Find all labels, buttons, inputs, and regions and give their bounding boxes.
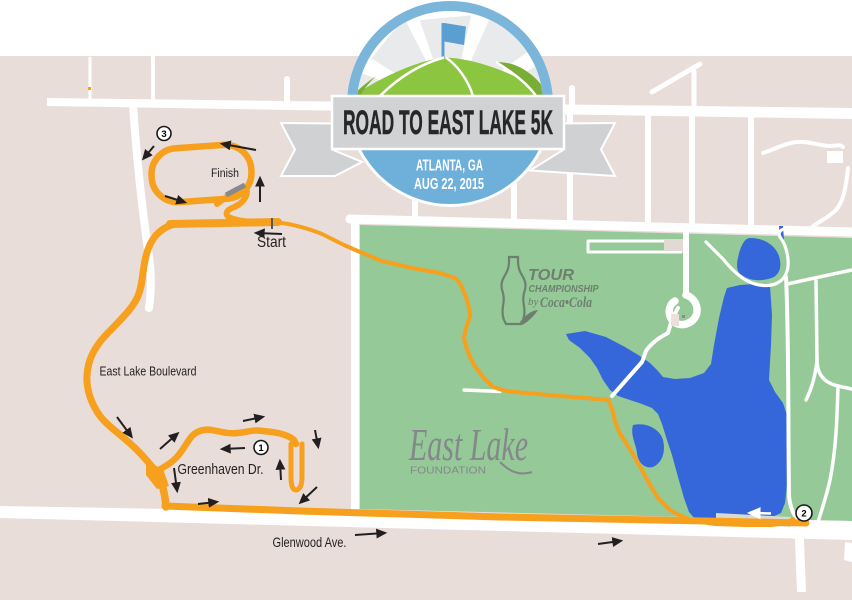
svg-text:East Lake: East Lake [408, 420, 528, 470]
svg-text:Finish: Finish [211, 168, 239, 180]
svg-text:Glenwood Ave.: Glenwood Ave. [273, 534, 347, 550]
svg-text:East Lake Boulevard: East Lake Boulevard [100, 365, 197, 379]
svg-text:FOUNDATION: FOUNDATION [410, 465, 486, 477]
svg-text:Coca•Cola: Coca•Cola [540, 295, 592, 311]
svg-text:TOUR: TOUR [528, 267, 575, 284]
svg-text:AUG 22, 2015: AUG 22, 2015 [414, 176, 484, 193]
svg-text:ROAD TO EAST LAKE 5K: ROAD TO EAST LAKE 5K [343, 104, 553, 142]
svg-text:3: 3 [161, 129, 166, 140]
svg-text:1: 1 [258, 443, 264, 454]
svg-text:Greenhaven Dr.: Greenhaven Dr. [178, 461, 264, 478]
svg-text:Start: Start [257, 234, 287, 251]
svg-text:by: by [528, 296, 539, 308]
svg-text:CHAMPIONSHIP: CHAMPIONSHIP [529, 283, 600, 295]
svg-text:ATLANTA, GA: ATLANTA, GA [416, 158, 483, 175]
svg-text:2: 2 [801, 509, 806, 520]
